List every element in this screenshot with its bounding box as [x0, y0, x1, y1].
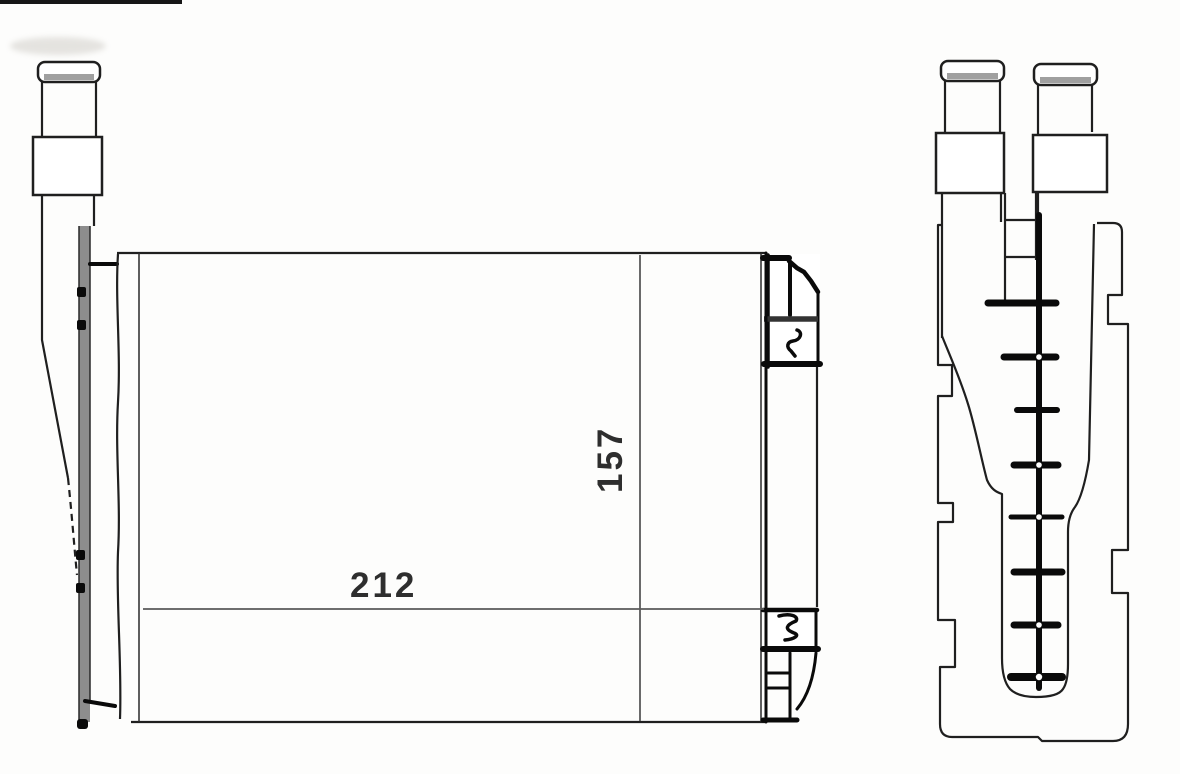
height-dimension-label: 157	[591, 426, 630, 493]
pipe-below-collar	[942, 193, 1001, 338]
pipe-taper-edge-dashed	[68, 478, 77, 575]
center-ladder	[1005, 193, 1036, 300]
lower-strip-bevel	[797, 653, 816, 709]
lower-strip-ticks	[768, 673, 790, 688]
tube-clip-mark	[76, 550, 85, 560]
tube-clip-mark	[76, 583, 85, 593]
clip-pin	[1036, 514, 1042, 520]
inlet-pipe-front	[33, 62, 117, 729]
pipe-collar	[33, 137, 102, 195]
pipe-neck	[945, 81, 1000, 133]
side-pipe-right	[1033, 64, 1107, 215]
core-body	[117, 253, 766, 722]
body-left-gasket-edge	[117, 254, 120, 719]
scan-smudge	[10, 37, 106, 55]
right-side-plate	[763, 253, 820, 722]
pipe-below-collar	[42, 195, 94, 226]
technical-drawing-canvas: 212 157	[0, 0, 1180, 774]
front-view: 212 157	[33, 62, 820, 729]
tube-clip-mark	[77, 287, 86, 297]
side-view	[936, 61, 1128, 741]
scan-artifacts	[0, 0, 182, 55]
clip-pin	[1036, 354, 1042, 360]
pipe-tube-fill	[79, 226, 90, 722]
tube-clip-mark	[77, 320, 86, 330]
pipe-taper-edge	[42, 225, 68, 478]
pipe-collar	[1033, 135, 1107, 192]
clip-pin	[1036, 462, 1042, 468]
pipe-neck	[1038, 85, 1092, 135]
clip-pin	[1036, 622, 1042, 628]
tube-foot	[77, 719, 88, 729]
pipe-neck	[42, 82, 96, 137]
side-pipe-left	[936, 61, 1004, 338]
width-dimension-label: 212	[350, 566, 417, 605]
scan-edge-bar	[0, 0, 182, 4]
clip-pin	[1036, 674, 1042, 680]
drawing-stage: 212 157	[0, 0, 1180, 774]
seam-clips	[988, 303, 1062, 680]
dimensions: 212 157	[143, 255, 764, 721]
pipe-collar	[936, 133, 1004, 193]
